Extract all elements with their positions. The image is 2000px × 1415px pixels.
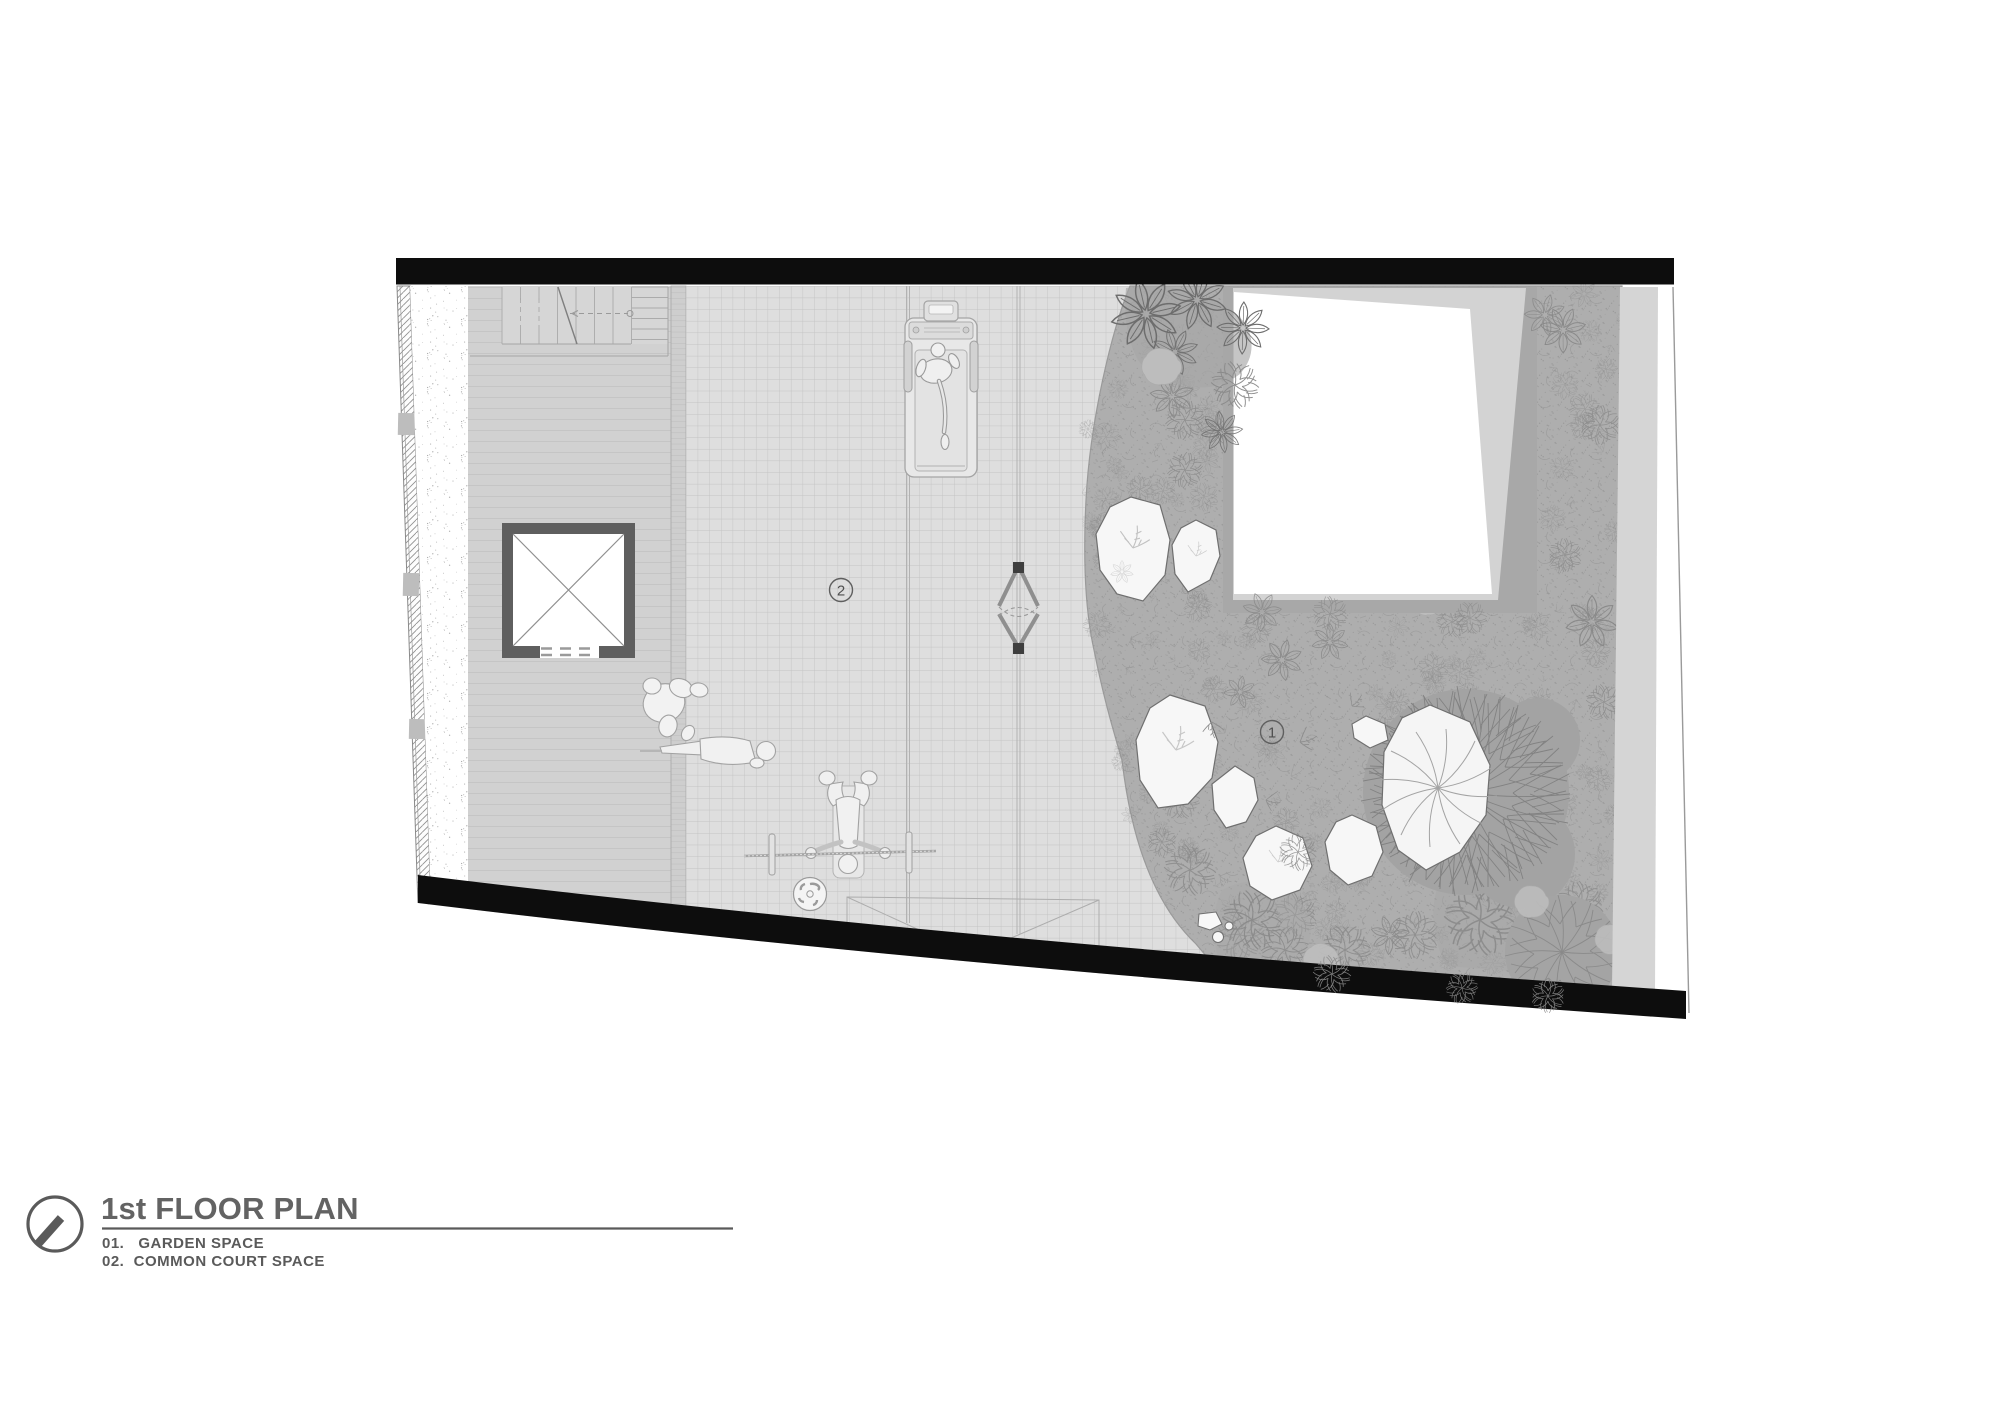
svg-text:1st FLOOR PLAN: 1st FLOOR PLAN — [101, 1191, 359, 1226]
svg-text:1: 1 — [1268, 725, 1276, 742]
svg-text:01. GARDEN SPACE: 01. GARDEN SPACE — [102, 1235, 264, 1252]
svg-text:2: 2 — [837, 583, 845, 600]
svg-text:02. COMMON COURT SPACE: 02. COMMON COURT SPACE — [102, 1253, 325, 1270]
